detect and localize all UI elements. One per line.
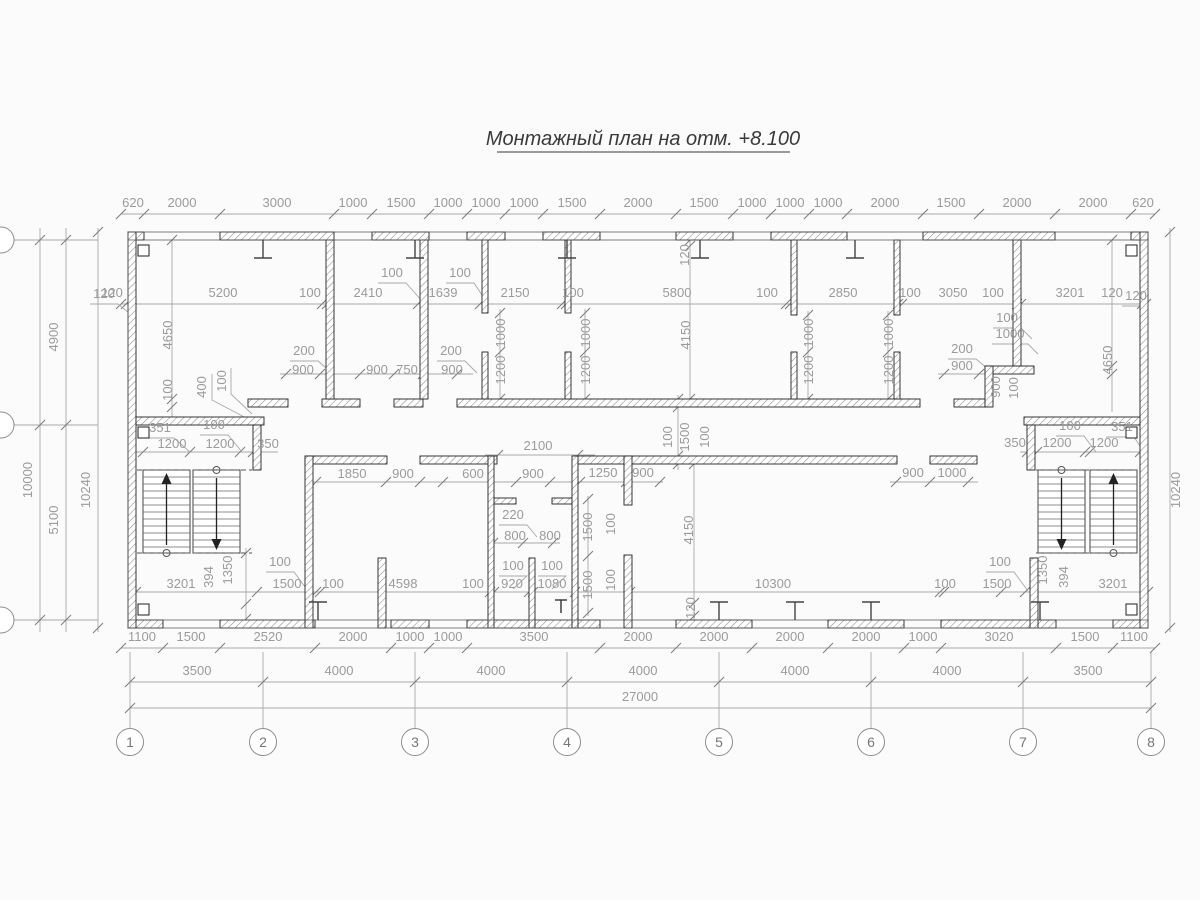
dim-label: 1500 (177, 629, 206, 644)
dim-label: 394 (201, 566, 216, 588)
dim-label: 100 (1006, 377, 1021, 399)
dim-label: 10240 (78, 472, 93, 508)
dim-label: 900 (292, 362, 314, 377)
dim-label: 4150 (678, 321, 693, 350)
dim-label: 1500 (937, 195, 966, 210)
dim-label: 10000 (20, 462, 35, 498)
dim-label: 100 (502, 558, 524, 573)
grid-axis-label: 6 (867, 734, 875, 750)
dim-label: 1200 (801, 356, 816, 385)
dim-label: 900 (902, 465, 924, 480)
dim-label: 1000 (434, 195, 463, 210)
dim-label: 350 (1004, 435, 1026, 450)
dim-label: 100 (299, 285, 321, 300)
dim-label: 351 (149, 420, 171, 435)
dim-label: 2520 (254, 629, 283, 644)
dim-label: 1000 (801, 319, 816, 348)
grid-letter-bubble (0, 227, 14, 253)
dim-label: 1200 (1043, 435, 1072, 450)
dim-label: 1200 (881, 356, 896, 385)
dim-label: 10240 (1168, 472, 1183, 508)
dim-label: 3500 (1074, 663, 1103, 678)
dim-label: 100 (982, 285, 1004, 300)
dim-label: 2100 (524, 438, 553, 453)
dim-label: 120 (1101, 285, 1123, 300)
dim-label: 4598 (389, 576, 418, 591)
dim-label: 2150 (501, 285, 530, 300)
dim-label: 1200 (158, 436, 187, 451)
dim-label: 100 (269, 554, 291, 569)
dim-label: 2000 (852, 629, 881, 644)
dim-label: 200 (440, 343, 462, 358)
dim-label: 4000 (325, 663, 354, 678)
dim-label: 2000 (776, 629, 805, 644)
dim-label: 1000 (493, 319, 508, 348)
dim-label: 1500 (580, 571, 595, 600)
dim-label: 220 (502, 507, 524, 522)
dim-label: 3201 (1099, 576, 1128, 591)
dim-label: 2000 (871, 195, 900, 210)
dim-label: 100 (660, 426, 675, 448)
dim-label: 100 (989, 554, 1011, 569)
dim-label: 120 (677, 244, 692, 266)
dim-label: 3201 (1056, 285, 1085, 300)
dim-label: 100 (603, 569, 618, 591)
dim-label: 400 (194, 376, 209, 398)
dim-label: 350 (257, 436, 279, 451)
dim-label: 100 (934, 576, 956, 591)
dim-label: 1350 (1035, 556, 1050, 585)
dim-label: 120 (683, 597, 698, 619)
dim-label: 2850 (829, 285, 858, 300)
dim-label: 2410 (354, 285, 383, 300)
dim-label: 3500 (520, 629, 549, 644)
dim-label: 800 (504, 528, 526, 543)
dim-label: 4000 (933, 663, 962, 678)
dim-label: 200 (951, 341, 973, 356)
drawing-title: Монтажный план на отм. +8.100 (486, 128, 800, 150)
dim-label: 900 (366, 362, 388, 377)
dim-label: 1200 (578, 356, 593, 385)
dim-label: 1000 (938, 465, 967, 480)
dim-label: 100 (756, 285, 778, 300)
dim-label: 1000 (814, 195, 843, 210)
dim-label: 100 (541, 558, 563, 573)
dim-label: 100 (562, 285, 584, 300)
grid-axis-bubble: 1 (117, 729, 144, 756)
dim-label: 100 (214, 370, 229, 392)
dim-label: 1000 (776, 195, 805, 210)
dim-label: 100 (899, 285, 921, 300)
dim-label: 120 (1125, 288, 1147, 303)
dim-label: 1500 (558, 195, 587, 210)
dim-label: 1500 (690, 195, 719, 210)
dim-label: 100 (203, 417, 225, 432)
dim-label: 4000 (477, 663, 506, 678)
dim-label: 100 (449, 265, 471, 280)
grid-axis-bubble: 5 (706, 729, 733, 756)
dim-label: 2000 (700, 629, 729, 644)
dim-label: 100 (160, 379, 175, 401)
dim-label: 3000 (263, 195, 292, 210)
grid-letter-bubble (0, 607, 14, 633)
stairwells (137, 467, 1139, 557)
dim-label: 1350 (220, 556, 235, 585)
dim-label: 1080 (538, 576, 567, 591)
dim-label: 2000 (624, 629, 653, 644)
dim-label: 1000 (909, 629, 938, 644)
grid-axis-label: 5 (715, 734, 723, 750)
dim-label: 620 (122, 195, 144, 210)
dim-label: 120 (93, 286, 115, 301)
grid-axis-bubble: 7 (1010, 729, 1037, 756)
dim-label: 5100 (46, 506, 61, 535)
dim-label: 2000 (1003, 195, 1032, 210)
dim-label: 1200 (206, 436, 235, 451)
dim-label: 100 (996, 310, 1018, 325)
dim-label: 394 (1056, 566, 1071, 588)
dim-label: 1200 (1090, 435, 1119, 450)
dim-label: 1000 (996, 326, 1025, 341)
dim-label: 2000 (168, 195, 197, 210)
grid-axis-label: 4 (563, 734, 571, 750)
grid-axis-bubble: 2 (250, 729, 277, 756)
dim-label: 100 (381, 265, 403, 280)
grid-axis-bubble: 6 (858, 729, 885, 756)
dim-label: 3500 (183, 663, 212, 678)
dim-label: 3020 (985, 629, 1014, 644)
dim-label: 920 (501, 576, 523, 591)
dim-label: 4650 (1100, 346, 1115, 375)
dim-label: 1000 (578, 319, 593, 348)
dim-label: 100 (1059, 418, 1081, 433)
dim-label: 4150 (681, 516, 696, 545)
dim-label: 1500 (387, 195, 416, 210)
dim-label: 4650 (160, 321, 175, 350)
dim-label: 600 (462, 466, 484, 481)
dim-label: 620 (1132, 195, 1154, 210)
grid-axis-label: 8 (1147, 734, 1155, 750)
dim-label: 3050 (939, 285, 968, 300)
dim-label: 5200 (209, 285, 238, 300)
dim-label: 1250 (589, 465, 618, 480)
dim-label: 800 (539, 528, 561, 543)
dim-label: 5800 (663, 285, 692, 300)
dim-label: 2000 (339, 629, 368, 644)
dim-label: 900 (951, 358, 973, 373)
dim-label: 1500 (983, 576, 1012, 591)
dim-label: 1000 (738, 195, 767, 210)
dim-label: 100 (603, 513, 618, 535)
dim-label: 4000 (781, 663, 810, 678)
grid-axis-label: 2 (259, 734, 267, 750)
dim-label: 2000 (1079, 195, 1108, 210)
dim-label: 900 (632, 465, 654, 480)
dim-label: 1100 (1120, 629, 1148, 644)
dim-label: 27000 (622, 689, 658, 704)
dim-label: 1850 (338, 466, 367, 481)
dim-label: 10300 (755, 576, 791, 591)
dim-label: 1000 (396, 629, 425, 644)
dim-label: 3201 (167, 576, 196, 591)
grid-axis-bubble: 3 (402, 729, 429, 756)
dim-label: 900 (441, 362, 463, 377)
dim-label: 1639 (429, 285, 458, 300)
grid-letter-bubble (0, 412, 14, 438)
dim-label: 1500 (677, 423, 692, 452)
dim-label: 100 (697, 426, 712, 448)
dim-label: 900 (988, 376, 1003, 398)
drawing-sheet: { "title": "Монтажный план на отм. +8.10… (0, 0, 1200, 900)
dim-label: 750 (396, 362, 418, 377)
dim-label: 1000 (339, 195, 368, 210)
grid-axis-bubble: 8 (1138, 729, 1165, 756)
grid-axis-label: 1 (126, 734, 134, 750)
floor-plan-canvas: Монтажный план на отм. +8.100 6202000300… (0, 0, 1200, 900)
dim-label: 1200 (493, 356, 508, 385)
dim-label: 1000 (881, 319, 896, 348)
dim-label: 900 (392, 466, 414, 481)
dim-label: 4900 (46, 323, 61, 352)
dim-label: 1000 (472, 195, 501, 210)
dim-label: 1500 (1071, 629, 1100, 644)
grid-axis-label: 3 (411, 734, 419, 750)
dim-label: 1100 (128, 629, 156, 644)
dim-label: 200 (293, 343, 315, 358)
grid-axis-label: 7 (1019, 734, 1027, 750)
dim-label: 1500 (273, 576, 302, 591)
dim-label: 2000 (624, 195, 653, 210)
dim-label: 1000 (510, 195, 539, 210)
dim-label: 900 (522, 466, 544, 481)
dim-label: 100 (322, 576, 344, 591)
dim-label: 1000 (434, 629, 463, 644)
dim-label: 351 (1111, 419, 1133, 434)
dim-label: 1500 (580, 513, 595, 542)
dim-label: 100 (462, 576, 484, 591)
grid-axis-bubble: 4 (554, 729, 581, 756)
dim-label: 4000 (629, 663, 658, 678)
